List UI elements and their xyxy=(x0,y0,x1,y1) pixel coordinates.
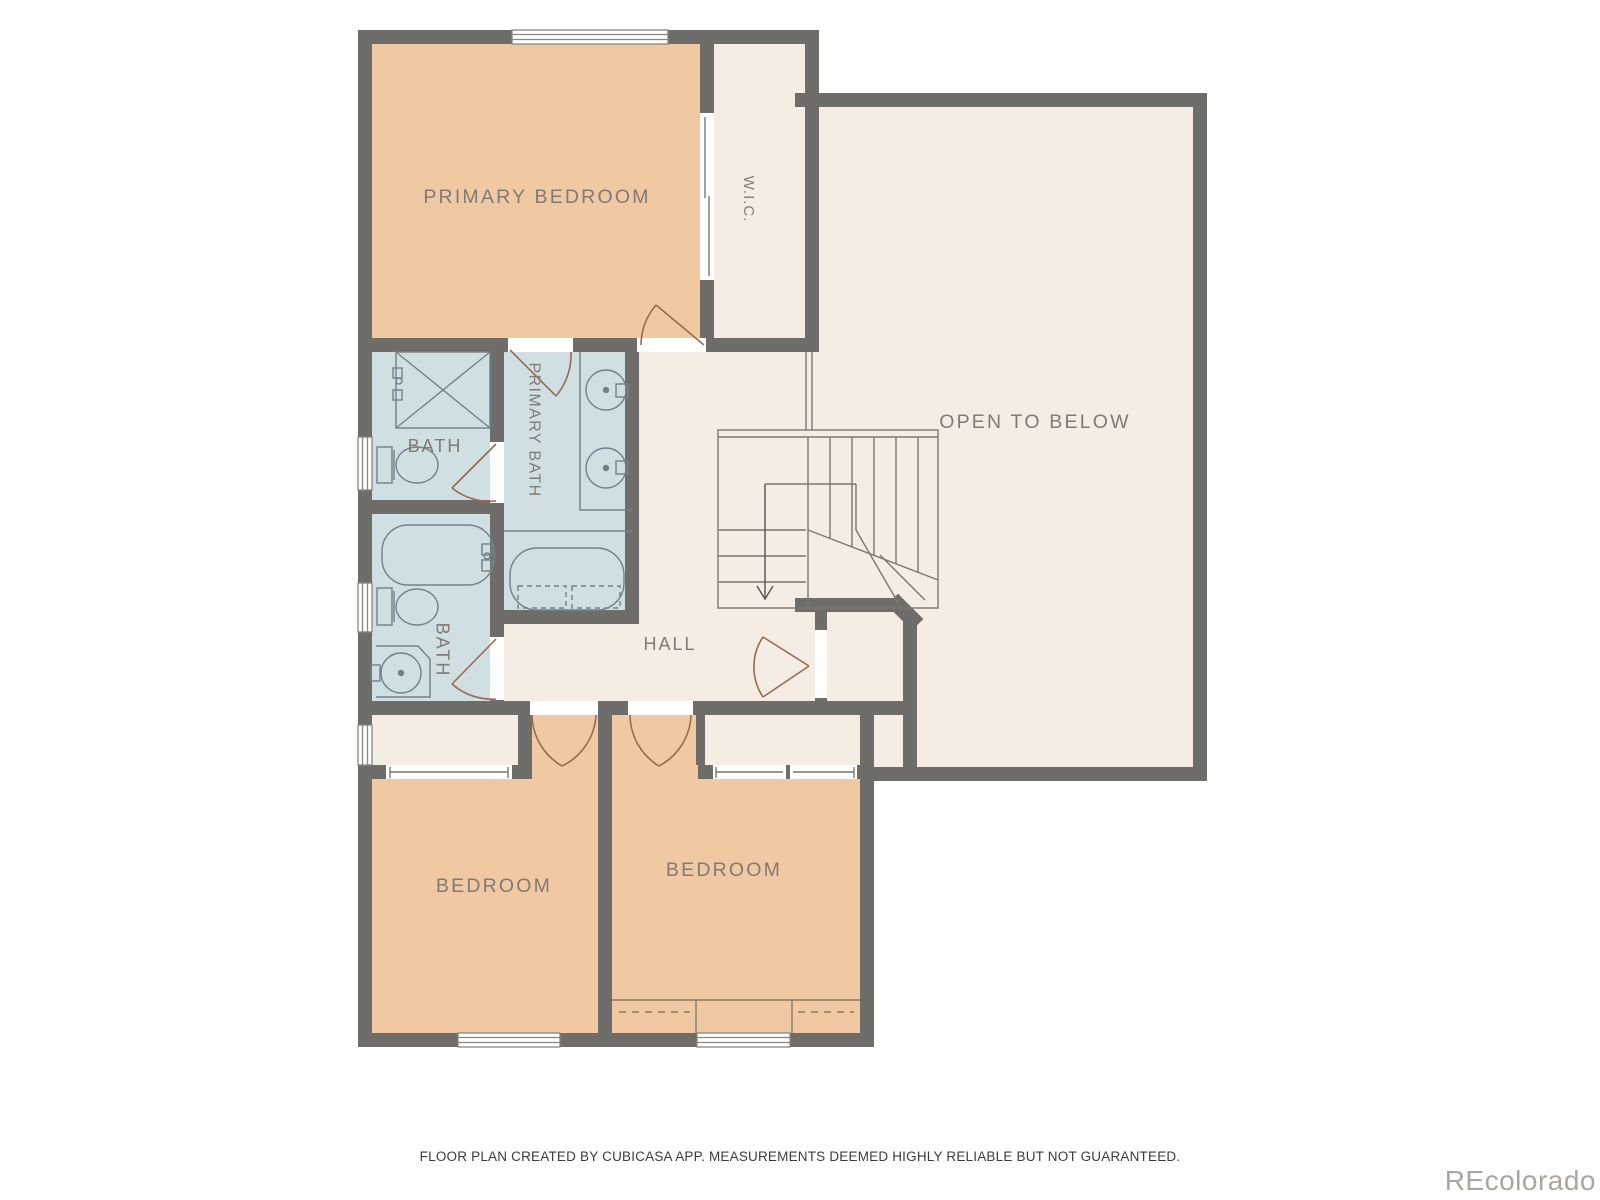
opening-bath-upper-door xyxy=(490,442,504,503)
opening-bath-lower-door xyxy=(490,637,504,700)
wall-primary-bath-right xyxy=(625,352,639,624)
wall-diagonal-corner xyxy=(898,605,912,619)
label-wic: W.I.C. xyxy=(740,176,757,223)
floor-plan-canvas: PRIMARY BEDROOM W.I.C. OPEN TO BELOW BAT… xyxy=(0,0,1600,1200)
wall-stair-south xyxy=(795,598,897,612)
window-icon xyxy=(358,725,372,765)
label-open-to-below: OPEN TO BELOW xyxy=(939,411,1131,433)
label-primary-bedroom: PRIMARY BEDROOM xyxy=(423,186,650,208)
label-bath-upper: BATH xyxy=(408,436,463,456)
opening-primary-bedroom-door xyxy=(637,338,706,352)
label-hall: HALL xyxy=(643,634,696,654)
wall-between-baths xyxy=(372,500,504,514)
wall-wic-right xyxy=(805,30,819,352)
bedroom-left-closet-floor xyxy=(372,715,518,765)
wall-primary-bath-bottom xyxy=(490,610,639,624)
wall-primary-bedroom-bottom xyxy=(358,338,819,352)
label-bedroom-right: BEDROOM xyxy=(666,859,782,881)
bedroom-right-closet-floor xyxy=(705,715,860,765)
label-bedroom-left: BEDROOM xyxy=(436,875,552,897)
label-primary-bath: PRIMARY BATH xyxy=(525,362,542,497)
opening-nook-door xyxy=(815,630,827,698)
label-bath-lower: BATH xyxy=(433,623,453,678)
window-icon xyxy=(512,30,668,44)
window-icon xyxy=(458,1033,560,1047)
wall-open-area-top xyxy=(795,93,1207,107)
opening-bedroom-right-door xyxy=(628,701,693,715)
wall-left-exterior xyxy=(358,30,372,1047)
window-icon xyxy=(358,437,372,490)
wall-left-closet-divider xyxy=(518,715,532,779)
wall-bedroom-right-east xyxy=(860,715,874,1047)
window-icon xyxy=(358,583,372,632)
footer-disclaimer: FLOOR PLAN CREATED BY CUBICASA APP. MEAS… xyxy=(420,1149,1181,1164)
wall-nook-east xyxy=(903,612,917,781)
floor-plan-page: PRIMARY BEDROOM W.I.C. OPEN TO BELOW BAT… xyxy=(0,0,1600,1200)
watermark: REcolorado xyxy=(1445,1165,1596,1196)
wall-right-exterior xyxy=(1193,93,1207,781)
wall-between-bedrooms xyxy=(598,715,612,1033)
opening-wic-sliding xyxy=(700,113,714,280)
wall-right-closet-west xyxy=(696,715,705,765)
window-icon xyxy=(697,1033,790,1047)
primary-bath-floor xyxy=(497,345,632,624)
opening-primary-bath-door xyxy=(508,338,573,352)
opening-bedroom-left-door xyxy=(530,701,598,715)
wall-bedrooms-bottom xyxy=(358,1033,874,1047)
